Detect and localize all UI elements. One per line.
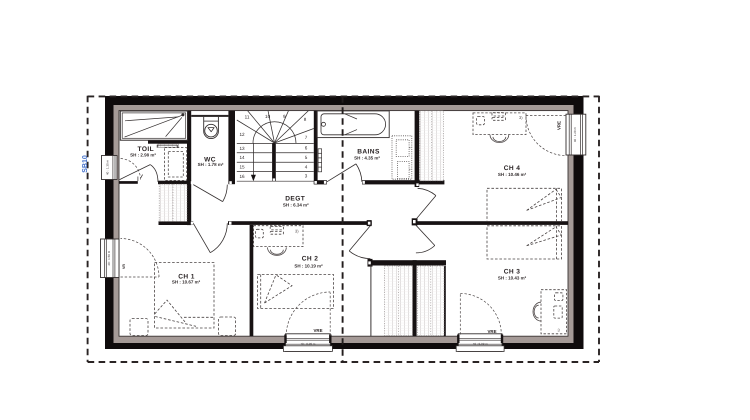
svg-text:12: 12 xyxy=(239,132,245,137)
svg-text:SH : 10.67 m²: SH : 10.67 m² xyxy=(172,280,201,285)
svg-text:SH : 6.34 m²: SH : 6.34 m² xyxy=(283,202,309,207)
svg-text:VRE: VRE xyxy=(487,329,496,334)
svg-text:10: 10 xyxy=(265,114,271,119)
svg-text:6: 6 xyxy=(305,146,308,151)
svg-text:SH : 10.19 m²: SH : 10.19 m² xyxy=(294,263,323,268)
svg-text:3: 3 xyxy=(305,174,308,179)
svg-text:SH : 10.46 m²: SH : 10.46 m² xyxy=(498,172,527,177)
svg-text:13: 13 xyxy=(239,146,245,151)
svg-text:14: 14 xyxy=(239,155,245,160)
svg-text:SH : 2.98 m²: SH : 2.98 m² xyxy=(130,153,156,158)
svg-text:15: 15 xyxy=(239,165,245,170)
svg-text:9: 9 xyxy=(283,114,286,119)
svg-text:VRE: VRE xyxy=(313,328,322,333)
svg-text:40 : 1.50 m: 40 : 1.50 m xyxy=(107,250,111,266)
svg-text:7: 7 xyxy=(305,135,308,140)
svg-text:4: 4 xyxy=(305,164,308,169)
svg-text:11: 11 xyxy=(245,114,250,119)
svg-text:SH : 4.35 m²: SH : 4.35 m² xyxy=(354,155,380,160)
svg-text:VR: VR xyxy=(122,264,126,269)
svg-text:SB10: SB10 xyxy=(82,155,89,173)
svg-text:VRE: VRE xyxy=(557,121,562,130)
svg-text:40 : 1.30 m: 40 : 1.30 m xyxy=(106,159,110,175)
svg-text:CH 2: CH 2 xyxy=(302,256,319,263)
svg-text:40 : 1.20 m: 40 : 1.20 m xyxy=(573,127,577,143)
svg-text:5: 5 xyxy=(305,155,308,160)
svg-text:SH : 10.43 m²: SH : 10.43 m² xyxy=(498,275,527,280)
svg-text:SH : 1.78 m²: SH : 1.78 m² xyxy=(198,162,224,167)
svg-text:40 : 0.90 m: 40 : 0.90 m xyxy=(300,342,316,346)
svg-text:40 : 0.90 m: 40 : 0.90 m xyxy=(473,342,489,346)
svg-text:16: 16 xyxy=(239,174,245,179)
svg-text:8: 8 xyxy=(304,117,307,122)
svg-text:CH 4: CH 4 xyxy=(504,165,521,172)
